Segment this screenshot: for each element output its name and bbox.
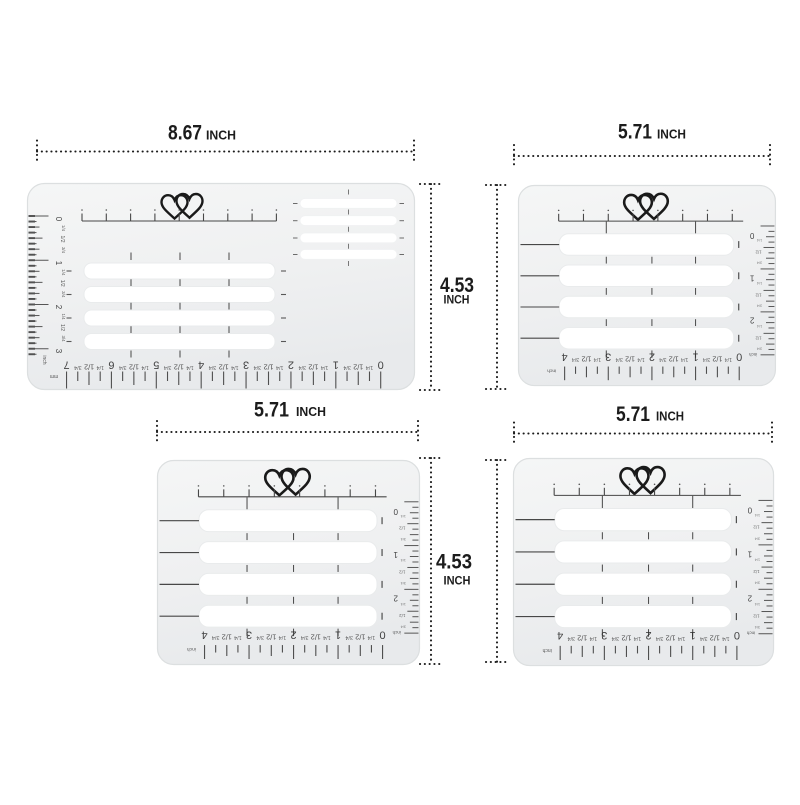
svg-text:INCH: INCH bbox=[444, 293, 470, 307]
svg-text:3: 3 bbox=[605, 350, 611, 362]
svg-text:3/4: 3/4 bbox=[212, 634, 220, 640]
svg-text:1/2: 1/2 bbox=[666, 633, 676, 642]
svg-text:inch: inch bbox=[542, 647, 551, 653]
svg-text:3/4: 3/4 bbox=[74, 364, 82, 370]
svg-text:1/2: 1/2 bbox=[753, 525, 760, 530]
svg-text:1: 1 bbox=[393, 550, 398, 559]
svg-text:2: 2 bbox=[290, 629, 296, 641]
svg-text:1/2: 1/2 bbox=[710, 633, 720, 642]
svg-text:1/2: 1/2 bbox=[399, 569, 406, 574]
svg-text:3/4: 3/4 bbox=[703, 356, 710, 362]
svg-text:3/4: 3/4 bbox=[756, 261, 762, 265]
svg-text:1/4: 1/4 bbox=[400, 602, 406, 607]
svg-text:3: 3 bbox=[246, 629, 252, 641]
svg-text:inch: inch bbox=[547, 367, 556, 373]
svg-text:1/2: 1/2 bbox=[219, 362, 229, 371]
svg-text:1/4: 1/4 bbox=[400, 514, 406, 519]
svg-text:1/2: 1/2 bbox=[59, 280, 65, 287]
svg-text:2: 2 bbox=[747, 593, 752, 602]
svg-text:1/4: 1/4 bbox=[234, 634, 242, 640]
svg-text:INCH: INCH bbox=[657, 127, 686, 142]
svg-text:1/2: 1/2 bbox=[308, 362, 318, 371]
svg-text:2: 2 bbox=[645, 629, 651, 641]
svg-text:3/4: 3/4 bbox=[400, 537, 406, 542]
svg-text:3/4: 3/4 bbox=[345, 634, 353, 640]
svg-text:1/4: 1/4 bbox=[590, 635, 598, 641]
svg-text:3/4: 3/4 bbox=[61, 291, 66, 298]
svg-text:5.71: 5.71 bbox=[616, 403, 650, 426]
svg-text:1/2: 1/2 bbox=[355, 633, 365, 642]
svg-text:1/4: 1/4 bbox=[61, 269, 66, 276]
svg-text:1/2: 1/2 bbox=[59, 324, 65, 331]
svg-text:INCH: INCH bbox=[444, 574, 471, 588]
svg-text:1/4: 1/4 bbox=[366, 364, 374, 370]
svg-text:1/2: 1/2 bbox=[755, 335, 762, 340]
svg-text:0: 0 bbox=[379, 629, 385, 641]
svg-text:1/4: 1/4 bbox=[61, 313, 66, 320]
svg-text:3/4: 3/4 bbox=[400, 625, 406, 630]
svg-text:3/4: 3/4 bbox=[612, 635, 620, 641]
svg-text:2: 2 bbox=[649, 350, 655, 362]
svg-text:inch: inch bbox=[392, 630, 401, 635]
svg-text:1/2: 1/2 bbox=[311, 633, 321, 642]
svg-text:1/4: 1/4 bbox=[279, 634, 287, 640]
svg-text:1/4: 1/4 bbox=[754, 513, 760, 518]
svg-text:1/2: 1/2 bbox=[399, 613, 406, 618]
svg-text:3/4: 3/4 bbox=[298, 364, 306, 370]
svg-text:1/2: 1/2 bbox=[264, 362, 274, 371]
svg-text:1/4: 1/4 bbox=[276, 364, 284, 370]
svg-text:1/4: 1/4 bbox=[754, 602, 760, 607]
svg-text:5.71: 5.71 bbox=[618, 121, 652, 144]
svg-text:2: 2 bbox=[288, 358, 294, 370]
svg-text:1/2: 1/2 bbox=[59, 236, 65, 243]
svg-text:4: 4 bbox=[562, 350, 568, 362]
svg-text:1: 1 bbox=[54, 261, 63, 266]
svg-text:2: 2 bbox=[393, 593, 398, 602]
svg-text:0: 0 bbox=[749, 231, 754, 240]
svg-text:3/4: 3/4 bbox=[209, 364, 217, 370]
svg-text:INCH: INCH bbox=[656, 409, 684, 424]
svg-text:0: 0 bbox=[736, 350, 742, 362]
svg-text:3/4: 3/4 bbox=[119, 364, 127, 370]
svg-text:3/4: 3/4 bbox=[615, 356, 622, 362]
svg-text:inch: inch bbox=[41, 355, 47, 364]
svg-text:0: 0 bbox=[734, 629, 740, 641]
svg-text:1/2: 1/2 bbox=[353, 362, 363, 371]
svg-text:3: 3 bbox=[243, 358, 249, 370]
svg-text:1: 1 bbox=[693, 350, 699, 362]
svg-text:1/4: 1/4 bbox=[756, 238, 762, 242]
svg-text:0: 0 bbox=[747, 505, 752, 514]
svg-text:3/4: 3/4 bbox=[343, 364, 351, 370]
svg-text:inch: inch bbox=[187, 646, 196, 652]
svg-text:inch: inch bbox=[746, 631, 755, 636]
svg-text:1: 1 bbox=[333, 358, 339, 370]
svg-text:1/4: 1/4 bbox=[141, 364, 149, 370]
svg-text:3/4: 3/4 bbox=[700, 635, 708, 641]
svg-text:1: 1 bbox=[750, 273, 754, 282]
svg-text:3/4: 3/4 bbox=[756, 347, 762, 351]
svg-text:1/2: 1/2 bbox=[621, 633, 631, 642]
svg-text:4.53: 4.53 bbox=[436, 551, 472, 574]
svg-text:3/4: 3/4 bbox=[754, 536, 760, 541]
svg-text:3/4: 3/4 bbox=[254, 364, 261, 370]
svg-text:3: 3 bbox=[601, 629, 607, 641]
svg-text:6: 6 bbox=[108, 358, 114, 370]
svg-text:1/2: 1/2 bbox=[755, 292, 762, 297]
svg-text:4: 4 bbox=[201, 629, 207, 641]
svg-text:4: 4 bbox=[198, 358, 204, 370]
svg-text:1/2: 1/2 bbox=[577, 633, 587, 642]
svg-text:1/4: 1/4 bbox=[725, 356, 732, 362]
svg-text:1/2: 1/2 bbox=[266, 633, 276, 642]
svg-text:1/2: 1/2 bbox=[669, 354, 679, 362]
svg-text:2: 2 bbox=[750, 316, 754, 325]
svg-text:0: 0 bbox=[393, 507, 398, 516]
svg-text:1/2: 1/2 bbox=[581, 354, 591, 362]
svg-text:1/4: 1/4 bbox=[186, 364, 194, 370]
svg-text:0: 0 bbox=[378, 358, 384, 370]
svg-text:1/2: 1/2 bbox=[84, 362, 94, 371]
svg-text:1: 1 bbox=[335, 629, 341, 641]
svg-text:INCH: INCH bbox=[296, 404, 326, 419]
svg-text:3/4: 3/4 bbox=[754, 581, 760, 586]
svg-text:1/2: 1/2 bbox=[753, 614, 760, 619]
svg-text:0: 0 bbox=[54, 217, 63, 222]
svg-text:1/2: 1/2 bbox=[755, 249, 762, 254]
svg-text:3/4: 3/4 bbox=[164, 364, 172, 370]
svg-text:1/2: 1/2 bbox=[222, 633, 232, 642]
svg-text:1: 1 bbox=[747, 549, 752, 558]
svg-text:3/4: 3/4 bbox=[656, 635, 664, 641]
svg-text:1/4: 1/4 bbox=[231, 364, 239, 370]
svg-text:1/4: 1/4 bbox=[61, 225, 66, 232]
svg-text:2: 2 bbox=[54, 305, 63, 310]
svg-text:3/4: 3/4 bbox=[61, 247, 66, 254]
svg-text:1/4: 1/4 bbox=[754, 557, 760, 562]
svg-text:5: 5 bbox=[153, 358, 159, 370]
svg-text:1/4: 1/4 bbox=[678, 635, 686, 641]
svg-text:4: 4 bbox=[557, 629, 563, 641]
svg-text:5.71: 5.71 bbox=[254, 399, 289, 422]
svg-text:3/4: 3/4 bbox=[301, 634, 309, 640]
svg-text:inch: inch bbox=[748, 352, 757, 357]
svg-text:1/2: 1/2 bbox=[753, 569, 760, 574]
svg-text:1/2: 1/2 bbox=[399, 526, 406, 531]
svg-text:1/4: 1/4 bbox=[97, 364, 105, 370]
svg-text:1/4: 1/4 bbox=[756, 281, 762, 285]
svg-text:3/4: 3/4 bbox=[256, 634, 264, 640]
svg-text:3/4: 3/4 bbox=[567, 635, 575, 641]
svg-text:1: 1 bbox=[690, 629, 696, 641]
svg-text:1/2: 1/2 bbox=[174, 362, 184, 371]
svg-text:1/4: 1/4 bbox=[368, 634, 376, 640]
svg-text:1/4: 1/4 bbox=[400, 558, 406, 563]
svg-text:1/4: 1/4 bbox=[634, 635, 642, 641]
svg-text:1/2: 1/2 bbox=[129, 362, 139, 371]
svg-text:3/4: 3/4 bbox=[659, 356, 666, 362]
svg-text:3/4: 3/4 bbox=[400, 581, 406, 586]
svg-text:3: 3 bbox=[54, 349, 63, 354]
svg-text:INCH: INCH bbox=[206, 128, 236, 143]
svg-text:3/4: 3/4 bbox=[572, 356, 579, 362]
svg-text:8.67: 8.67 bbox=[168, 122, 202, 145]
svg-text:7: 7 bbox=[64, 358, 70, 370]
svg-text:3/4: 3/4 bbox=[61, 335, 66, 342]
svg-text:3/4: 3/4 bbox=[754, 625, 760, 630]
svg-text:1/2: 1/2 bbox=[625, 354, 635, 362]
svg-text:1/4: 1/4 bbox=[681, 356, 688, 362]
svg-text:1/4: 1/4 bbox=[321, 364, 329, 370]
svg-text:1/4: 1/4 bbox=[722, 635, 730, 641]
svg-text:mm: mm bbox=[50, 373, 58, 379]
svg-text:1/4: 1/4 bbox=[594, 356, 601, 362]
svg-text:1/4: 1/4 bbox=[323, 634, 331, 640]
svg-text:1/4: 1/4 bbox=[637, 356, 644, 362]
svg-text:1/2: 1/2 bbox=[712, 354, 722, 362]
svg-text:3/4: 3/4 bbox=[756, 304, 762, 308]
svg-text:1/4: 1/4 bbox=[756, 324, 762, 328]
